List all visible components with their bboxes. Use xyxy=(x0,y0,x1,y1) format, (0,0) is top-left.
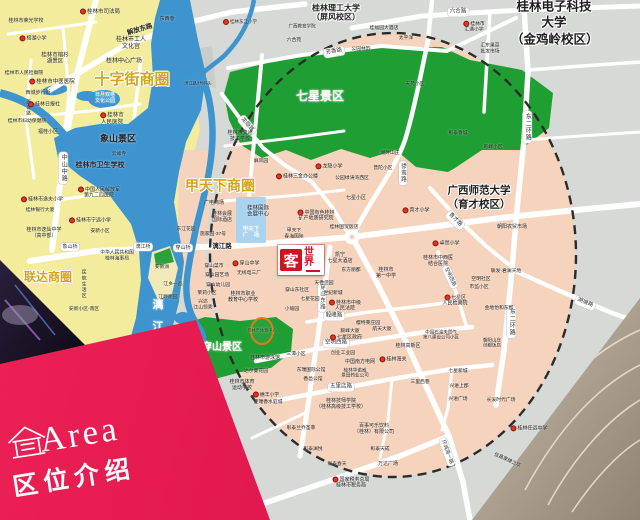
poi-marker-icon xyxy=(432,240,438,246)
map-label: 芳香路 xyxy=(323,46,345,58)
map-label: 桂林市逸夫小学 xyxy=(21,196,63,203)
map-label: 小喻园 xyxy=(285,307,299,313)
map-label: 西城步行街 xyxy=(25,91,50,97)
map-label: 佳瑞香水庭城 xyxy=(254,400,283,406)
map-label: 彰泰春天 xyxy=(327,462,346,468)
map-label: 江畔丽园 xyxy=(158,295,177,301)
map-label: 桂林市体育 运动学校 xyxy=(229,380,254,392)
map-label: 桂林国际 会展中心 xyxy=(247,206,269,219)
map-label: 甲天下 春海国际 xyxy=(284,228,303,239)
map-label: 七星区 人民检察院 xyxy=(442,294,467,307)
map-label: 安新洲 xyxy=(155,265,169,271)
map-label: 穿山园艺场 xyxy=(205,273,229,279)
map-label: 日月双塔 文化公园 xyxy=(95,93,115,105)
map-label: 广西教育学院 xyxy=(289,23,316,28)
map-label: 毅峰路 xyxy=(324,312,345,321)
map-label: 桂林市榕杉 湖景区 xyxy=(41,53,69,66)
map-label: 中山中路 xyxy=(59,152,68,184)
poi-marker-icon xyxy=(69,217,75,223)
map-label: 东二环路 xyxy=(523,111,532,143)
map-label: 空明西路 xyxy=(441,264,459,289)
map-label: 无线电三厂 xyxy=(237,271,261,277)
univ-gxnu: 广西师范大学 （育才校区） xyxy=(448,184,511,211)
map-label: 桂林任远中学 xyxy=(510,425,547,432)
map-label: 百事可乐饮料 （桂林）有限公司 xyxy=(354,424,394,436)
map-label: 滨江路3号码头 xyxy=(184,82,211,87)
district-shizijie: 十字街商圈 xyxy=(94,71,169,89)
poi-marker-icon xyxy=(276,173,282,179)
logo-side-text: 世界 xyxy=(304,248,322,272)
map-label: 中国有色桂林 矿产地质研究院 xyxy=(297,209,334,222)
map-label: 中国石油天然气 第八建设公司小区 xyxy=(423,330,459,341)
univ-glut: 桂林理工大学 （屏风校区） xyxy=(312,4,360,23)
poi-marker-icon xyxy=(402,207,408,213)
map-label: 福桂小区 xyxy=(38,130,58,136)
map-label: 桂林东江小学 xyxy=(223,19,257,25)
map-label: 漓江路 xyxy=(212,243,232,251)
map-label: 桂林国贸饭店 xyxy=(330,225,359,231)
map-label: 凯宁 七星大酒店 xyxy=(327,253,352,265)
map-label: 公园绿涛湾西区 xyxy=(335,176,369,182)
map-label: 万达广场 xyxy=(378,462,398,468)
map-label: 七星区政府 xyxy=(330,334,362,341)
area-introduction-slide: 客 世界 十字街商圈甲天下商圈联达商圈七星景区穿山景区象山景区桂林电子科技大学 … xyxy=(0,0,640,520)
map-label: 环城南一路 xyxy=(438,437,456,467)
map-label: 屏风园 xyxy=(254,159,268,165)
map-label: 桂林市中西医 结合医院 xyxy=(423,256,453,268)
map-label: 施家园-37号 xyxy=(200,232,226,238)
map-label: 桂林日报社 xyxy=(28,101,60,108)
map-label: 樱特莱庄园 xyxy=(356,321,380,327)
map-label: 中华人民共和国 桂林海事局 xyxy=(100,250,134,261)
map-label: 穿山东社区 xyxy=(285,288,309,294)
map-label: 东江花园 xyxy=(176,227,195,233)
poi-marker-icon xyxy=(28,101,34,107)
map-label: 彰泰兰乔圣菲 xyxy=(287,426,316,432)
map-label: 六合路 xyxy=(448,8,469,17)
map-label: 兴进广场 xyxy=(448,397,467,403)
map-label: 创业工业园 xyxy=(331,351,355,357)
poi-marker-icon xyxy=(379,356,385,362)
poi-marker-icon xyxy=(100,112,106,118)
map-label: 育才路 xyxy=(445,210,466,231)
map-label: 桂林会展 国际酒店 xyxy=(212,212,232,224)
map-label: 卓然小学 xyxy=(432,240,459,247)
map-label: 云峰寺 xyxy=(112,152,126,158)
park-chuanshan: 穿山景区 xyxy=(202,342,242,354)
map-label: 彰泰天成 xyxy=(370,447,389,453)
map-label: 桂林技师学院 （桂林高级技工学校） xyxy=(316,399,366,411)
map-label: 龙隐小学 xyxy=(315,163,342,170)
map-label: 彰泰香城 xyxy=(448,131,467,137)
map-label: 桂林市司法局 xyxy=(80,9,120,16)
map-label: 朝阳农贸市场 xyxy=(497,225,527,231)
map-label: 东方丽都 xyxy=(341,268,360,274)
poi-marker-icon xyxy=(19,35,25,41)
map-label: 江乡一品 xyxy=(163,282,182,288)
map-label: 桂林中心广场 xyxy=(106,58,142,65)
pavilion-icon xyxy=(3,420,51,466)
map-label: 桂林市 汇通小学 xyxy=(463,21,484,34)
poi-marker-icon xyxy=(510,425,516,431)
map-label: 信昌棠棣之华 xyxy=(493,452,521,469)
map-label: 桂林市 第一中学 xyxy=(376,268,396,280)
map-label: 中国人民解放军 第九二四医院 xyxy=(78,186,120,199)
map-label: 桂福园大酒店 xyxy=(370,26,399,32)
map-label: 桂林市游泳馆 xyxy=(250,356,280,362)
poi-marker-icon xyxy=(297,209,303,215)
project-logo-keshijie: 客 世界 xyxy=(278,245,324,275)
map-label: 香邑公馆 xyxy=(303,377,322,383)
map-label: 民航生活区 xyxy=(80,270,85,299)
poi-marker-icon xyxy=(329,299,335,305)
map-label: 七星花园 xyxy=(300,297,319,303)
map-label: 桂林市职业 教育中心学校 xyxy=(228,292,258,304)
map-label: 兴进上郡 xyxy=(449,384,468,390)
map-label: 六合苑 xyxy=(287,38,301,44)
map-label: 桂林市人民检察院 xyxy=(5,71,43,77)
map-label: 桂林市荣光学校 xyxy=(8,19,43,25)
map-label: 象山桥 xyxy=(60,243,79,251)
poi-marker-icon xyxy=(463,21,469,27)
map-label: 漓江桥 xyxy=(133,243,152,251)
map-label: 三潭小区 xyxy=(286,352,305,358)
map-label: 国家税务总局 桂林市税务局 xyxy=(332,476,369,489)
map-label: 奇峰小区 xyxy=(483,145,502,151)
map-label: 桂林市妇幼保健院 xyxy=(8,119,46,125)
map-label: 空明社区 xyxy=(471,277,490,283)
logo-underline xyxy=(306,270,320,272)
map-label: 桂林市中医医院 xyxy=(29,79,75,86)
map-label: 航天大厦 xyxy=(372,327,391,333)
map-label: 穗丰小学 xyxy=(253,392,279,399)
map-label: 甲天下 广 场 xyxy=(243,227,260,240)
park-qixing: 七星景区 xyxy=(296,89,344,103)
map-label: 湖畔山庄 xyxy=(380,151,399,157)
map-label: 金地怡和东郡 xyxy=(485,306,514,312)
map-label: 汇东果菜 批发市场 xyxy=(480,43,499,54)
map-label: 桂林海关 xyxy=(379,356,406,363)
poi-marker-icon xyxy=(80,9,86,15)
map-label: 解放东路 xyxy=(126,23,153,38)
map-label: 桂林市 人民医院 xyxy=(100,112,124,125)
map-label: 穿山菜市 xyxy=(204,264,223,270)
map-label: 湖塘路 xyxy=(574,295,596,311)
map-label: 穿山幼儿园 xyxy=(206,283,230,289)
map-label: 市监小区 xyxy=(469,285,488,291)
map-label: 七星新城 xyxy=(448,369,467,375)
park-xiangshan: 象山景区 xyxy=(100,134,136,145)
map-label: 安新小区 xyxy=(90,229,109,235)
map-label: 长溪时代广场 xyxy=(487,398,516,404)
district-lianda: 联达商圈 xyxy=(24,270,72,284)
poi-marker-icon xyxy=(253,392,259,398)
map-label: 太平洋 xyxy=(399,36,413,42)
map-label: 公园林韵 xyxy=(351,47,370,53)
poi-marker-icon xyxy=(330,334,336,340)
map-label: 骖鸾路 xyxy=(399,161,407,185)
map-label: 桂林华诺威 景田药业公司 xyxy=(341,368,369,379)
map-label: 茉莉小区 xyxy=(197,291,216,297)
map-label: 世纪新城 xyxy=(323,291,342,297)
map-label: 东瑞国际公馆 xyxy=(297,368,326,374)
poi-marker-icon xyxy=(78,186,84,192)
map-label: 中国南方电网 xyxy=(345,360,375,366)
map-label: 联发·君澜天地 xyxy=(491,269,521,275)
poi-marker-icon xyxy=(223,19,229,25)
poi-marker-icon xyxy=(444,294,450,300)
map-label: 天香佳园 xyxy=(314,281,333,287)
poi-marker-icon xyxy=(29,79,35,85)
map-label: 安新小区-南区 xyxy=(69,307,99,313)
univ-guet: 桂林电子科技大学 （金鸡岭校区） xyxy=(511,0,597,47)
map-label: 五里店路 xyxy=(328,383,354,392)
map-label: 广电商场 xyxy=(204,201,224,207)
map-label: 东西巷 xyxy=(159,17,174,23)
poi-marker-icon xyxy=(21,196,27,202)
map-label: 桂林市交通 技工学校 xyxy=(227,131,252,143)
map-label: 桂林市体育中心 xyxy=(247,329,276,334)
map-label: 桂林高新区 xyxy=(395,344,420,350)
poi-marker-icon xyxy=(332,476,338,482)
map-label: 天苑小区 xyxy=(405,82,424,88)
map-label: 桂林三金办公楼 xyxy=(276,173,318,180)
poi-marker-icon xyxy=(315,163,321,169)
map-label: 桂林市逸仙中学 （高中部） xyxy=(26,228,61,240)
map-label: 达尔曼花园 xyxy=(244,369,268,375)
map-label: 三里西巷 xyxy=(410,380,429,386)
map-label: 桂林银行大厦 xyxy=(26,208,55,214)
district-jiatianxia: 甲天下商圈 xyxy=(185,178,255,195)
map-label: 七星小区 xyxy=(346,196,366,202)
map-label: 桂林市卫生学校 xyxy=(76,162,125,170)
map-label: 育才小学 xyxy=(402,207,429,214)
map-label: 朝阳山庄 创都饭店 xyxy=(483,338,501,349)
map-label: 桂林市中级 人民法院 xyxy=(329,299,361,312)
map-label: 穿山中学 xyxy=(232,260,259,267)
map-label: 穿山桥 xyxy=(173,244,192,252)
map-label: 桂林市工人 文化宫 xyxy=(116,37,146,51)
poi-marker-icon xyxy=(232,260,238,266)
map-label: 榕湖小学 xyxy=(19,35,46,42)
map-label: 桂林市宁远小学 xyxy=(69,217,111,224)
logo-main-character: 客 xyxy=(280,249,302,271)
map-label: 普陀小区 xyxy=(373,166,392,172)
map-label: 彰泰澜悦 xyxy=(303,447,322,453)
map-label: 兴达 江山领秀 xyxy=(193,299,212,310)
